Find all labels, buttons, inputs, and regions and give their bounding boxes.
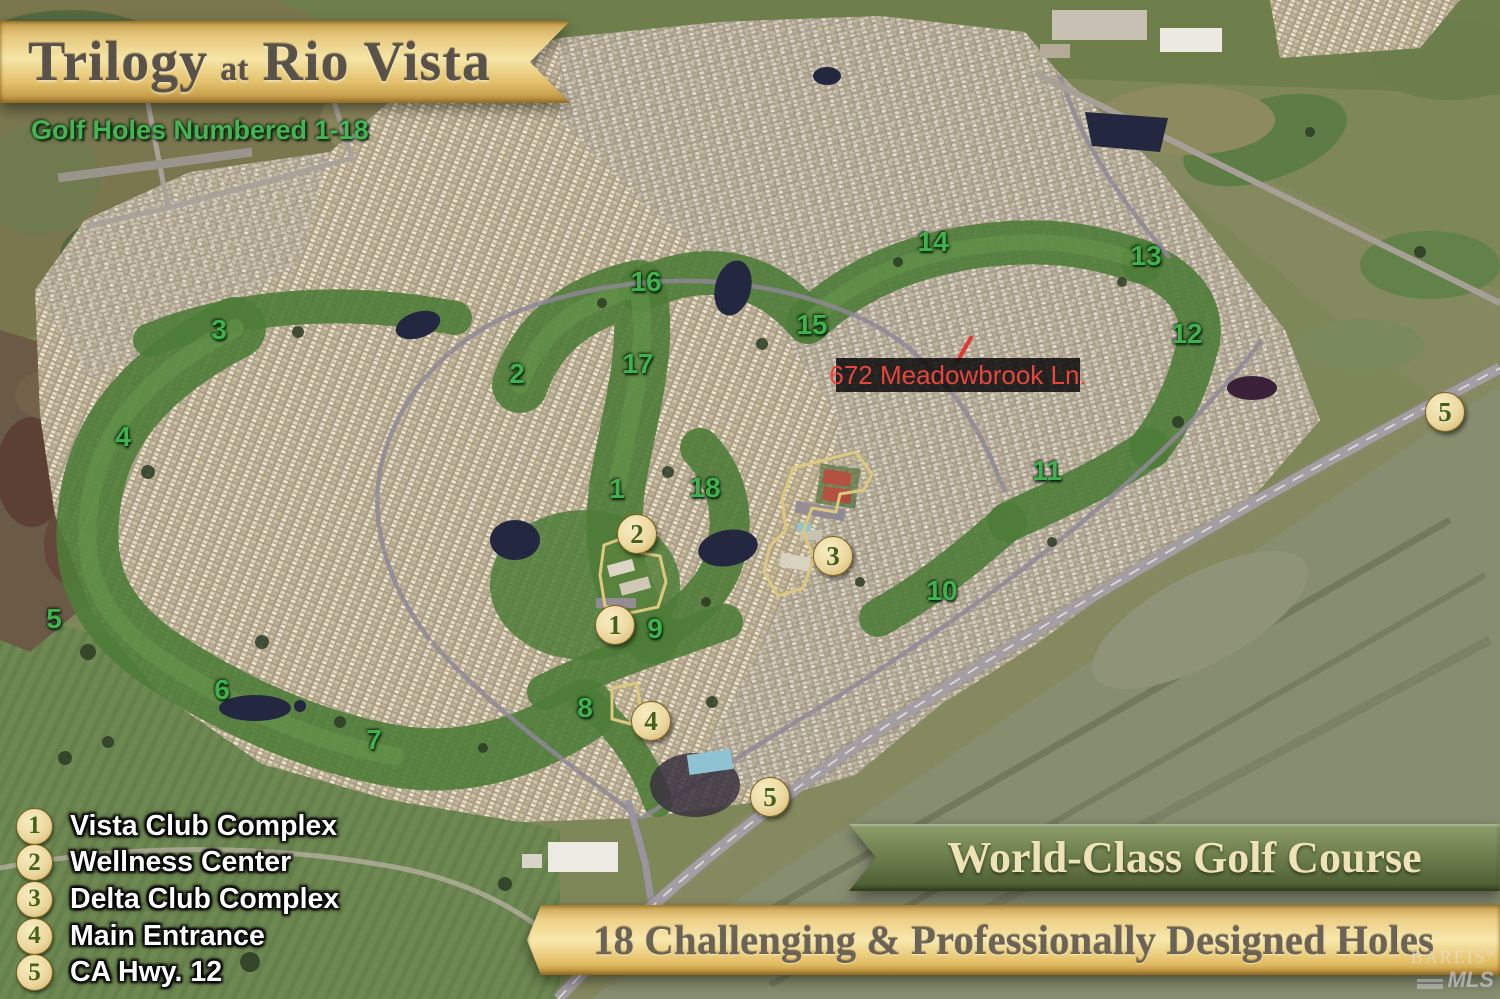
hole-number-14: 14 (917, 226, 948, 258)
bareis-mls-watermark: BAREIS® MLS (1411, 948, 1494, 991)
watermark-brand: BAREIS (1411, 947, 1487, 967)
hole-number-11: 11 (1032, 455, 1062, 487)
hole-number-13: 13 (1130, 240, 1161, 272)
holes-banner-text: 18 Challenging & Professionally Designed… (593, 916, 1434, 964)
golf-holes-subtitle: Golf Holes Numbered 1-18 (31, 115, 369, 146)
golf-course-banner-text: World-Class Golf Course (927, 832, 1421, 883)
watermark-mls: MLS (1448, 967, 1494, 992)
legend-item-delta-club: 3 Delta Club Complex (16, 881, 339, 918)
legend: 1 Vista Club Complex 2 Wellness Center 3… (16, 808, 339, 991)
legend-item-main-entrance: 4 Main Entrance (16, 918, 339, 955)
hole-number-18: 18 (689, 472, 720, 504)
legend-label-2: Wellness Center (70, 846, 291, 879)
legend-circle-2: 2 (16, 844, 53, 881)
legend-circle-1: 1 (16, 808, 53, 845)
marker-hwy12-south: 5 (750, 777, 790, 817)
hole-number-8: 8 (577, 692, 593, 724)
marker-hwy12-east: 5 (1425, 392, 1465, 432)
title-main: Trilogy (28, 30, 208, 94)
hole-number-17: 17 (622, 348, 653, 380)
title-place: Rio Vista (263, 30, 491, 94)
hole-number-10: 10 (926, 575, 957, 607)
page-title: Trilogy at Rio Vista (28, 30, 491, 94)
hole-number-1: 1 (609, 473, 625, 505)
hole-number-9: 9 (647, 613, 663, 645)
legend-circle-3: 3 (16, 881, 53, 918)
flyer-aerial-map: Trilogy at Rio Vista Golf Holes Numbered… (0, 0, 1500, 999)
hole-number-6: 6 (214, 674, 230, 706)
legend-label-5: CA Hwy. 12 (70, 956, 222, 989)
hole-number-16: 16 (630, 266, 661, 298)
address-label: 672 Meadowbrook Ln. (836, 358, 1080, 392)
watermark-lines-icon (1417, 979, 1443, 984)
marker-delta-club: 3 (813, 536, 853, 576)
title-connector: at (220, 51, 248, 89)
legend-item-vista-club: 1 Vista Club Complex (16, 808, 339, 845)
title-ribbon: Trilogy at Rio Vista (0, 21, 570, 103)
legend-circle-5: 5 (16, 954, 53, 991)
hole-number-3: 3 (211, 314, 227, 346)
marker-wellness-center: 2 (617, 514, 657, 554)
legend-item-hwy12: 5 CA Hwy. 12 (16, 954, 339, 991)
marker-main-entrance: 4 (631, 701, 671, 741)
hole-number-12: 12 (1171, 318, 1202, 350)
hole-number-2: 2 (509, 358, 525, 390)
legend-label-4: Main Entrance (70, 920, 265, 953)
watermark-registered-icon: ® (1487, 949, 1494, 960)
holes-ribbon: 18 Challenging & Professionally Designed… (527, 905, 1500, 975)
hole-number-4: 4 (115, 421, 131, 453)
hole-number-5: 5 (46, 603, 62, 635)
legend-circle-4: 4 (16, 918, 53, 955)
hole-number-15: 15 (796, 309, 827, 341)
hole-number-7: 7 (366, 724, 382, 756)
legend-item-wellness-center: 2 Wellness Center (16, 845, 339, 882)
legend-label-3: Delta Club Complex (70, 883, 339, 916)
legend-label-1: Vista Club Complex (70, 810, 337, 843)
marker-vista-club: 1 (595, 605, 635, 645)
golf-course-ribbon: World-Class Golf Course (849, 824, 1500, 891)
